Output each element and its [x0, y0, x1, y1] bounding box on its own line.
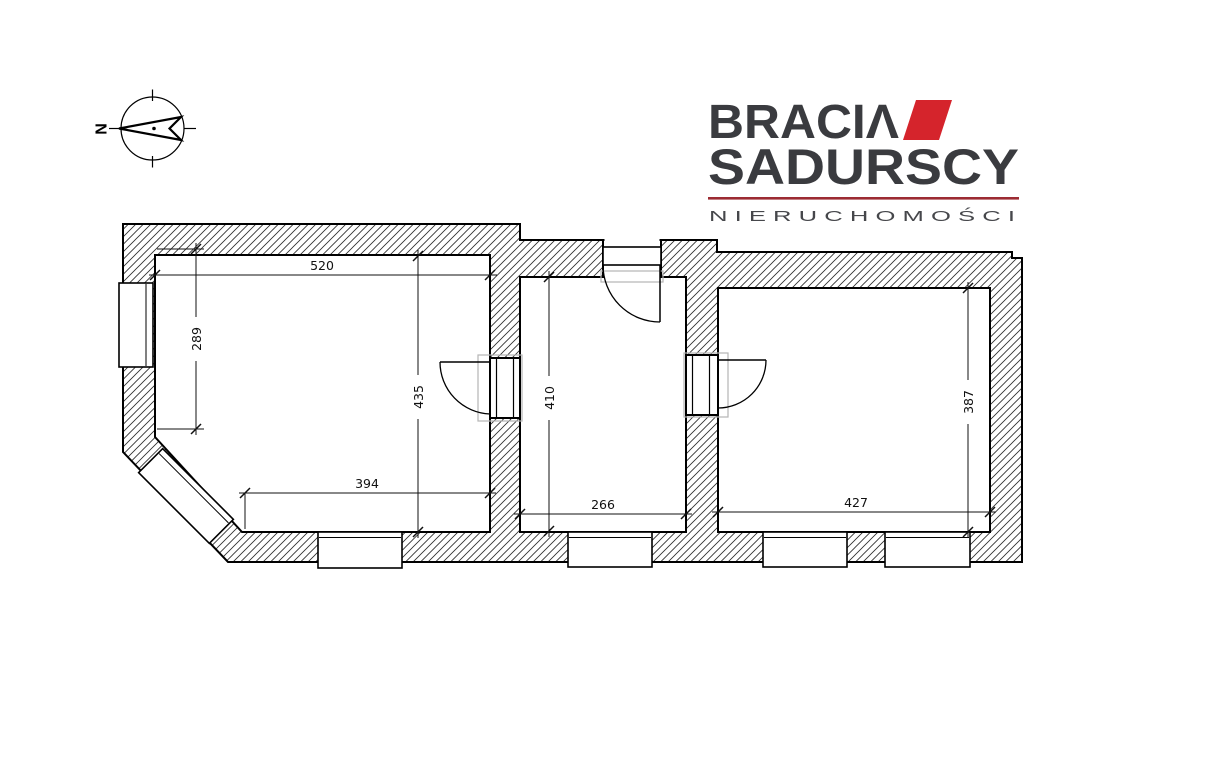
north-compass: N [94, 90, 197, 168]
floor-plan-canvas: N BRACIΛ SADURSCY N I E R U C H O M O Ś … [0, 0, 1217, 762]
door-left-to-middle [440, 355, 522, 421]
floor-plan-page: N BRACIΛ SADURSCY N I E R U C H O M O Ś … [0, 0, 1217, 762]
dimension-label: 266 [591, 497, 615, 512]
door-middle-to-right [684, 353, 766, 417]
dimension-289: 289 [157, 243, 204, 435]
dimension-266: 266 [514, 497, 692, 519]
brand-logo: BRACIΛ SADURSCY N I E R U C H O M O Ś C … [708, 96, 1019, 225]
brand-underline [708, 197, 1019, 200]
dimension-435: 435 [411, 250, 426, 538]
dimension-label: 520 [310, 258, 334, 273]
window-left-wall [119, 283, 153, 367]
dimension-label: 289 [189, 327, 204, 351]
dimension-label: 410 [542, 386, 557, 410]
door2-swing-arc [718, 360, 766, 408]
dimension-label: 427 [844, 495, 868, 510]
dimension-520: 520 [149, 258, 497, 280]
brand-tagline: N I E R U C H O M O Ś C I [709, 207, 1015, 225]
windows [119, 283, 970, 568]
window-chamfer-wall [139, 449, 234, 544]
north-label: N [94, 123, 111, 135]
brand-name-line2: SADURSCY [708, 139, 1019, 195]
dimension-label: 394 [355, 476, 379, 491]
entrance-door-swing-arc [603, 265, 660, 322]
dimension-410: 410 [542, 271, 557, 537]
door1-swing-arc [440, 362, 490, 414]
dimension-label: 435 [411, 385, 426, 409]
brand-accent-parallelogram-icon [903, 100, 952, 140]
dimension-387: 387 [961, 282, 976, 538]
entrance-threshold [603, 247, 661, 265]
dimension-394: 394 [239, 476, 496, 529]
compass-center-dot [152, 127, 156, 131]
compass-needle [119, 117, 181, 140]
entrance-door [601, 247, 663, 322]
dimension-label: 387 [961, 390, 976, 414]
door1-ghost [478, 355, 522, 421]
dimension-427: 427 [712, 495, 996, 517]
